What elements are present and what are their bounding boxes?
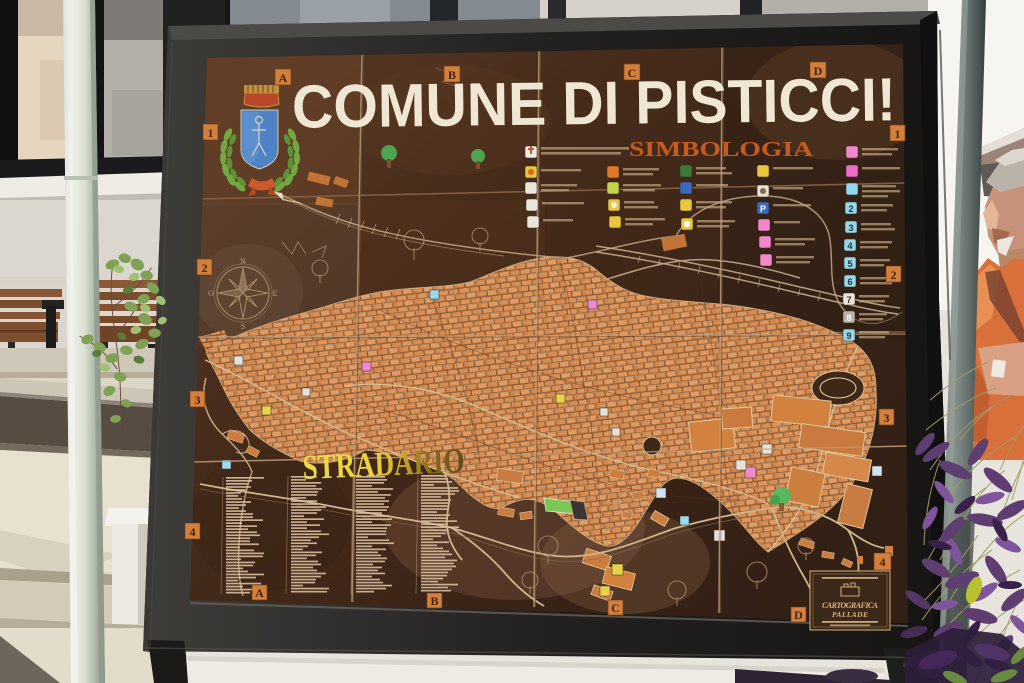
svg-text:N: N xyxy=(240,257,246,266)
svg-text:7: 7 xyxy=(846,295,851,305)
svg-text:4: 4 xyxy=(880,555,886,569)
svg-text:P: P xyxy=(760,204,766,214)
svg-text:2: 2 xyxy=(848,204,853,214)
svg-text:4: 4 xyxy=(190,525,196,539)
svg-text:S: S xyxy=(241,322,245,331)
svg-text:C: C xyxy=(611,601,620,615)
svg-text:O: O xyxy=(208,289,214,298)
svg-text:6: 6 xyxy=(847,277,852,287)
svg-text:2: 2 xyxy=(891,268,897,282)
svg-text:SIMBOLOGIA: SIMBOLOGIA xyxy=(629,137,814,161)
svg-text:PALLADE: PALLADE xyxy=(832,610,868,619)
svg-text:B: B xyxy=(430,594,438,608)
svg-text:A: A xyxy=(279,71,288,85)
svg-text:4: 4 xyxy=(847,241,852,251)
svg-text:CARTOGRAFICA: CARTOGRAFICA xyxy=(822,601,879,610)
svg-text:3: 3 xyxy=(884,411,890,425)
svg-text:5: 5 xyxy=(847,259,852,269)
svg-text:3: 3 xyxy=(848,223,853,233)
svg-text:3: 3 xyxy=(195,393,201,407)
svg-text:COMUNE DI PISTICCI!: COMUNE DI PISTICCI! xyxy=(292,65,897,140)
svg-text:A: A xyxy=(255,586,264,600)
svg-text:STRADARIO: STRADARIO xyxy=(302,441,466,487)
svg-text:2: 2 xyxy=(202,261,208,275)
svg-text:9: 9 xyxy=(846,331,851,341)
svg-text:D: D xyxy=(794,608,803,622)
svg-text:E: E xyxy=(273,289,278,298)
svg-text:8: 8 xyxy=(846,313,851,323)
svg-text:1: 1 xyxy=(208,126,214,140)
